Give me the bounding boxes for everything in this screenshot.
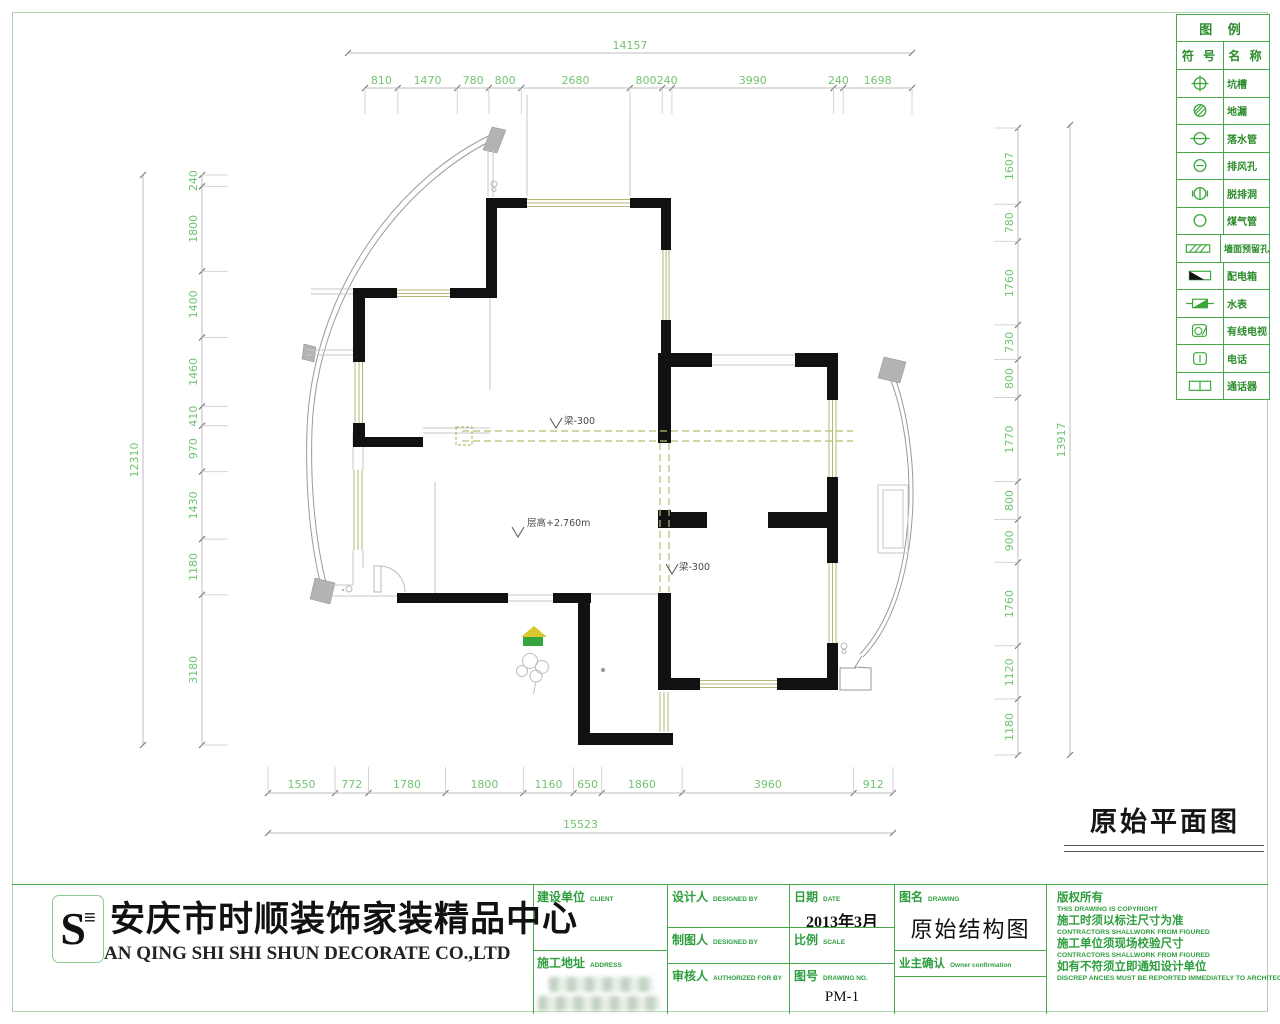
note-en: CONTRACTORS SHALLWORK FROM FIGURED bbox=[1057, 951, 1268, 960]
company-block: S ≡ 安庆市时顺装饰家装精品中心 AN QING SHI SHI SHUN D… bbox=[12, 885, 534, 1014]
censored-address bbox=[549, 977, 653, 992]
note-en: CONTRACTORS SHALLWORK FROM FIGURED bbox=[1057, 928, 1268, 937]
legend-row: 有线电视 bbox=[1177, 318, 1269, 346]
title-block: S ≡ 安庆市时顺装饰家装精品中心 AN QING SHI SHI SHUN D… bbox=[12, 884, 1268, 1014]
note-en: DISCREP ANCIES MUST BE REPORTED IMMEDIAT… bbox=[1057, 974, 1268, 983]
wall-hole-icon bbox=[1177, 235, 1221, 262]
drawing-no-label: 图号 bbox=[794, 969, 818, 983]
legend-column-headers: 符 号 名 称 bbox=[1177, 42, 1269, 70]
owner-sign-cell bbox=[895, 977, 1047, 1014]
date-cell: 日期DATE 2013年3月 bbox=[790, 885, 895, 928]
drawing-sheet: 梁-300 梁-300 层高+2.760m 141578101470780800… bbox=[0, 0, 1280, 1024]
telephone-icon bbox=[1177, 345, 1224, 372]
legend-item-name: 水表 bbox=[1224, 290, 1269, 317]
company-name-en: AN QING SHI SHI SHUN DECORATE CO.,LTD bbox=[104, 943, 524, 965]
scale-label-en: SCALE bbox=[823, 939, 845, 946]
note-en: THIS DRAWING IS COPYRIGHT bbox=[1057, 905, 1268, 914]
hood-hole-icon bbox=[1177, 180, 1224, 207]
drafter-label-en: DESIGNED BY bbox=[713, 939, 758, 946]
designer-cell: 设计人DESIGNED BY bbox=[668, 885, 790, 928]
address-label: 施工地址 bbox=[537, 956, 585, 970]
owner-label: 业主确认 bbox=[899, 958, 945, 970]
legend-item-name: 排风孔 bbox=[1224, 153, 1269, 180]
logo-lines-icon: ≡ bbox=[84, 907, 96, 930]
legend-row: 配电箱 bbox=[1177, 263, 1269, 291]
drawing-name-label: 图名 bbox=[899, 890, 923, 904]
drawing-title-underline bbox=[1064, 845, 1264, 852]
drafter-cell: 制图人DESIGNED BY bbox=[668, 928, 790, 964]
censored-address bbox=[538, 996, 660, 1011]
legend-row: 地漏 bbox=[1177, 98, 1269, 126]
legend-item-name: 有线电视 bbox=[1224, 318, 1269, 345]
legend-item-name: 落水管 bbox=[1224, 125, 1269, 152]
owner-label-en: Owner confirmation bbox=[950, 962, 1011, 969]
drawing-name-cell: 图名DRAWING 原始结构图 bbox=[895, 885, 1047, 951]
sheet-border bbox=[12, 12, 1268, 1012]
legend-row: 电话 bbox=[1177, 345, 1269, 373]
client-label-en: CLIENT bbox=[590, 896, 613, 903]
drawing-no-label-en: DRAWING NO. bbox=[823, 975, 868, 982]
checker-label-en: AUTHORIZED FOR BY bbox=[713, 975, 782, 982]
company-name-cn: 安庆市时顺装饰家装精品中心 bbox=[110, 891, 530, 942]
drawing-no-value: PM-1 bbox=[794, 989, 890, 1006]
floor-drain-icon bbox=[1177, 98, 1224, 125]
intercom-icon bbox=[1177, 373, 1224, 400]
address-label-en: ADDRESS bbox=[590, 962, 622, 969]
legend-rows: 坑槽地漏落水管排风孔脱排洞煤气管墙面预留孔配电箱水表有线电视电话通话器 bbox=[1177, 70, 1269, 399]
client-cell: 建设单位CLIENT bbox=[533, 885, 668, 951]
legend-item-name: 墙面预留孔 bbox=[1221, 235, 1269, 262]
note-cn: 如有不符须立即通知设计单位 bbox=[1057, 960, 1268, 974]
note-cn: 施工单位须现场校验尺寸 bbox=[1057, 937, 1268, 951]
legend-name-column-header: 名 称 bbox=[1224, 42, 1269, 69]
scale-label: 比例 bbox=[794, 933, 818, 947]
address-cell: 施工地址ADDRESS bbox=[533, 951, 668, 1014]
date-label-en: DATE bbox=[823, 896, 840, 903]
legend-row: 脱排洞 bbox=[1177, 180, 1269, 208]
pit-icon bbox=[1177, 70, 1224, 97]
legend-symbol-column-header: 符 号 bbox=[1177, 42, 1224, 69]
designer-label: 设计人 bbox=[672, 890, 708, 904]
legend-item-name: 电话 bbox=[1224, 345, 1269, 372]
gas-pipe-icon bbox=[1177, 208, 1224, 235]
legend-row: 水表 bbox=[1177, 290, 1269, 318]
checker-cell: 审核人AUTHORIZED FOR BY bbox=[668, 964, 790, 1014]
legend-row: 落水管 bbox=[1177, 125, 1269, 153]
legend-item-name: 脱排洞 bbox=[1224, 180, 1269, 207]
note-cn: 版权所有 bbox=[1057, 891, 1268, 905]
legend-item-name: 煤气管 bbox=[1224, 208, 1269, 235]
logo-letter: S bbox=[60, 906, 86, 952]
drawing-name-value: 原始结构图 bbox=[899, 912, 1042, 944]
legend-row: 排风孔 bbox=[1177, 153, 1269, 181]
designer-label-en: DESIGNED BY bbox=[713, 896, 758, 903]
title-block-table: 建设单位CLIENT 施工地址ADDRESS 设计人DESIGNED BY 制图… bbox=[533, 885, 1047, 1014]
drawing-name-label-en: DRAWING bbox=[928, 896, 959, 903]
company-logo: S ≡ bbox=[52, 895, 104, 963]
legend-row: 煤气管 bbox=[1177, 208, 1269, 236]
legend-row: 坑槽 bbox=[1177, 70, 1269, 98]
scale-cell: 比例SCALE bbox=[790, 928, 895, 964]
legend-item-name: 地漏 bbox=[1224, 98, 1269, 125]
date-label: 日期 bbox=[794, 890, 818, 904]
copyright-notes: 版权所有 THIS DRAWING IS COPYRIGHT 施工时须以标注尺寸… bbox=[1047, 885, 1268, 1014]
power-box-icon bbox=[1177, 263, 1224, 290]
cable-tv-icon bbox=[1177, 318, 1224, 345]
legend-item-name: 通话器 bbox=[1224, 373, 1269, 400]
owner-cell: 业主确认Owner confirmation bbox=[895, 951, 1047, 977]
drafter-label: 制图人 bbox=[672, 933, 708, 947]
drawing-no-cell: 图号DRAWING NO. PM-1 bbox=[790, 964, 895, 1014]
downpipe-icon bbox=[1177, 125, 1224, 152]
legend-item-name: 坑槽 bbox=[1224, 70, 1269, 97]
vent-icon bbox=[1177, 153, 1224, 180]
legend-title: 图 例 bbox=[1177, 15, 1269, 42]
checker-label: 审核人 bbox=[672, 969, 708, 983]
date-value: 2013年3月 bbox=[794, 908, 890, 928]
client-label: 建设单位 bbox=[537, 890, 585, 904]
drawing-title: 原始平面图 bbox=[1064, 800, 1266, 839]
legend-item-name: 配电箱 bbox=[1224, 263, 1269, 290]
legend-row: 墙面预留孔 bbox=[1177, 235, 1269, 263]
legend-row: 通话器 bbox=[1177, 373, 1269, 400]
water-meter-icon bbox=[1177, 290, 1224, 317]
note-cn: 施工时须以标注尺寸为准 bbox=[1057, 914, 1268, 928]
legend-table: 图 例 符 号 名 称 坑槽地漏落水管排风孔脱排洞煤气管墙面预留孔配电箱水表有线… bbox=[1176, 14, 1270, 400]
